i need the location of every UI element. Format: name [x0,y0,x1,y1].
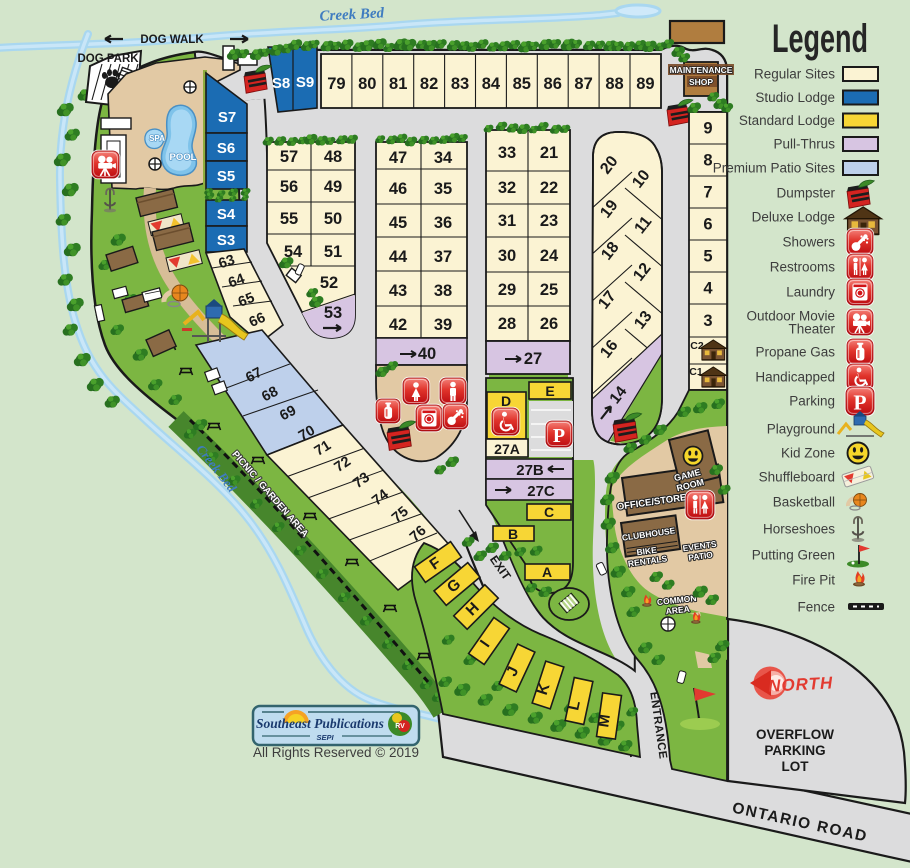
svg-text:S8: S8 [272,75,290,92]
svg-text:52: 52 [320,274,338,292]
svg-text:86: 86 [544,75,562,93]
svg-text:44: 44 [389,248,408,266]
svg-text:Horseshoes: Horseshoes [763,522,835,537]
svg-text:21: 21 [540,144,558,162]
svg-text:27B: 27B [516,462,544,479]
svg-text:S3: S3 [217,232,235,249]
svg-text:Laundry: Laundry [786,285,835,300]
svg-text:C1: C1 [689,366,703,378]
svg-text:83: 83 [451,75,469,93]
svg-text:45: 45 [389,214,407,232]
svg-text:23: 23 [540,212,558,230]
svg-text:34: 34 [434,149,453,167]
svg-text:8: 8 [703,152,712,170]
svg-text:RV: RV [395,723,405,730]
svg-text:Premium Patio Sites: Premium Patio Sites [713,161,836,176]
svg-text:22: 22 [540,179,558,197]
svg-text:30: 30 [498,247,516,265]
svg-text:S6: S6 [217,140,235,157]
svg-text:80: 80 [358,75,376,93]
svg-text:49: 49 [324,178,342,196]
svg-text:26: 26 [540,315,558,333]
svg-text:9: 9 [703,120,712,138]
svg-text:4: 4 [703,280,713,298]
svg-text:Pull-Thrus: Pull-Thrus [773,137,835,152]
svg-text:53: 53 [324,304,342,322]
svg-text:Southeast Publications: Southeast Publications [256,716,384,731]
svg-text:32: 32 [498,179,516,197]
svg-text:SPA: SPA [149,134,165,143]
svg-text:Theater: Theater [788,322,835,337]
svg-text:M: M [595,713,614,728]
svg-text:Fire Pit: Fire Pit [792,573,835,588]
svg-text:S4: S4 [217,206,236,223]
svg-text:24: 24 [540,247,559,265]
svg-text:31: 31 [498,212,516,230]
svg-text:35: 35 [434,180,452,198]
svg-text:Playground: Playground [767,422,835,437]
svg-text:Deluxe Lodge: Deluxe Lodge [752,210,835,225]
svg-text:A: A [542,564,552,580]
svg-text:DOG PARK: DOG PARK [77,53,139,65]
svg-text:Basketball: Basketball [773,495,835,510]
svg-text:5: 5 [703,248,712,266]
svg-text:88: 88 [605,75,623,93]
svg-text:87: 87 [574,75,592,93]
svg-text:S7: S7 [218,109,236,126]
svg-text:Dumpster: Dumpster [776,186,835,201]
svg-text:46: 46 [389,180,407,198]
svg-text:DOG WALK: DOG WALK [140,34,204,46]
svg-text:7: 7 [703,184,712,202]
svg-text:82: 82 [420,75,438,93]
svg-text:27: 27 [524,350,542,368]
svg-text:S5: S5 [217,168,235,185]
svg-text:40: 40 [418,345,436,363]
svg-text:43: 43 [389,282,407,300]
svg-text:38: 38 [434,282,452,300]
svg-text:28: 28 [498,315,516,333]
svg-text:D: D [501,393,511,409]
svg-text:81: 81 [389,75,407,93]
svg-text:42: 42 [389,316,407,334]
svg-text:C: C [544,504,554,520]
svg-text:Restrooms: Restrooms [770,260,836,275]
svg-text:84: 84 [482,75,501,93]
svg-text:55: 55 [280,210,298,228]
svg-text:NORTH: NORTH [768,673,834,695]
svg-text:33: 33 [498,144,516,162]
svg-text:27C: 27C [527,483,555,500]
svg-text:Kid Zone: Kid Zone [781,446,835,461]
svg-text:Putting Green: Putting Green [752,548,835,563]
svg-text:39: 39 [434,316,452,334]
svg-text:SEPI: SEPI [316,733,334,742]
svg-text:Legend: Legend [772,17,868,61]
svg-text:B: B [508,526,518,542]
svg-text:37: 37 [434,248,452,266]
svg-text:Regular Sites: Regular Sites [754,67,835,82]
svg-text:3: 3 [703,312,712,330]
svg-text:Propane Gas: Propane Gas [755,345,835,360]
svg-text:MAINTENANCE: MAINTENANCE [670,65,733,75]
svg-text:All Rights Reserved © 2019: All Rights Reserved © 2019 [253,745,419,760]
svg-text:POOL: POOL [170,152,197,163]
svg-text:48: 48 [324,148,342,166]
svg-text:Studio Lodge: Studio Lodge [755,90,835,105]
svg-text:LOT: LOT [782,759,810,774]
svg-text:56: 56 [280,178,298,196]
svg-text:S9: S9 [296,74,314,91]
svg-text:51: 51 [324,243,342,261]
svg-text:6: 6 [703,216,712,234]
svg-text:Fence: Fence [797,600,835,615]
svg-text:PARKING: PARKING [764,743,825,758]
svg-text:89: 89 [636,75,654,93]
svg-text:27A: 27A [494,441,520,457]
svg-text:E: E [545,383,554,399]
svg-text:OVERFLOW: OVERFLOW [756,727,834,742]
svg-text:Standard Lodge: Standard Lodge [739,113,835,128]
svg-text:50: 50 [324,210,342,228]
svg-text:Shuffleboard: Shuffleboard [759,470,835,485]
svg-text:85: 85 [513,75,531,93]
svg-text:Creek Bed: Creek Bed [319,5,385,24]
svg-text:Showers: Showers [782,235,835,250]
svg-text:79: 79 [327,75,345,93]
svg-text:SHOP: SHOP [689,77,713,87]
svg-text:Handicapped: Handicapped [755,370,835,385]
svg-text:36: 36 [434,214,452,232]
svg-text:57: 57 [280,148,298,166]
svg-text:25: 25 [540,281,558,299]
svg-text:29: 29 [498,281,516,299]
svg-text:Parking: Parking [789,394,835,409]
svg-text:47: 47 [389,149,407,167]
